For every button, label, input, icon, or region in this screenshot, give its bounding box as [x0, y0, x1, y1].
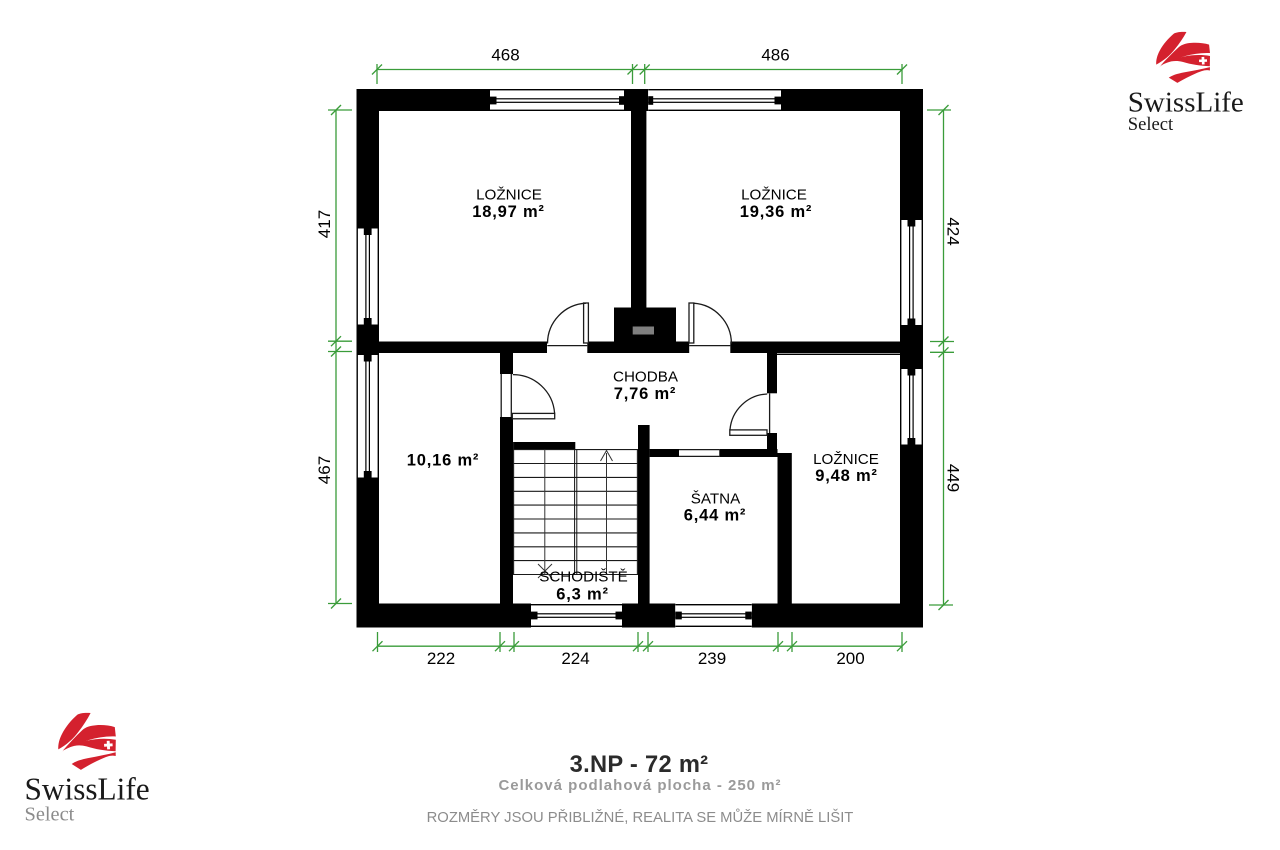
svg-text:224: 224 — [561, 649, 589, 668]
svg-text:449: 449 — [944, 464, 963, 492]
svg-text:222: 222 — [427, 649, 455, 668]
svg-text:LOŽNICE: LOŽNICE — [813, 451, 879, 468]
svg-text:9,48 m²: 9,48 m² — [815, 467, 877, 485]
svg-text:LOŽNICE: LOŽNICE — [741, 187, 807, 204]
svg-text:Select: Select — [25, 804, 75, 826]
svg-text:3.NP - 72 m²: 3.NP - 72 m² — [570, 752, 709, 778]
svg-text:468: 468 — [491, 45, 519, 64]
svg-text:ŠATNA: ŠATNA — [691, 491, 741, 508]
svg-text:417: 417 — [315, 210, 334, 238]
svg-text:Select: Select — [1128, 114, 1174, 135]
svg-text:10,16 m²: 10,16 m² — [407, 452, 479, 470]
svg-text:6,44 m²: 6,44 m² — [684, 507, 746, 525]
svg-text:6,3 m²: 6,3 m² — [556, 586, 609, 604]
svg-text:424: 424 — [944, 217, 963, 245]
svg-text:CHODBA: CHODBA — [613, 369, 679, 386]
svg-text:18,97 m²: 18,97 m² — [472, 203, 544, 221]
svg-text:Celková podlahová plocha - 250: Celková podlahová plocha - 250 m² — [498, 777, 781, 794]
svg-text:LOŽNICE: LOŽNICE — [476, 187, 542, 204]
svg-text:467: 467 — [315, 456, 334, 484]
svg-text:200: 200 — [836, 649, 864, 668]
svg-text:ROZMĚRY JSOU PŘIBLIŽNÉ, REALIT: ROZMĚRY JSOU PŘIBLIŽNÉ, REALITA SE MŮŽE … — [427, 808, 854, 826]
svg-text:7,76 m²: 7,76 m² — [614, 385, 676, 403]
svg-text:SCHODIŠTĚ: SCHODIŠTĚ — [539, 569, 628, 586]
svg-text:SwissLife: SwissLife — [25, 772, 150, 807]
svg-text:486: 486 — [761, 45, 789, 64]
svg-text:19,36 m²: 19,36 m² — [740, 203, 812, 221]
svg-text:239: 239 — [698, 649, 726, 668]
